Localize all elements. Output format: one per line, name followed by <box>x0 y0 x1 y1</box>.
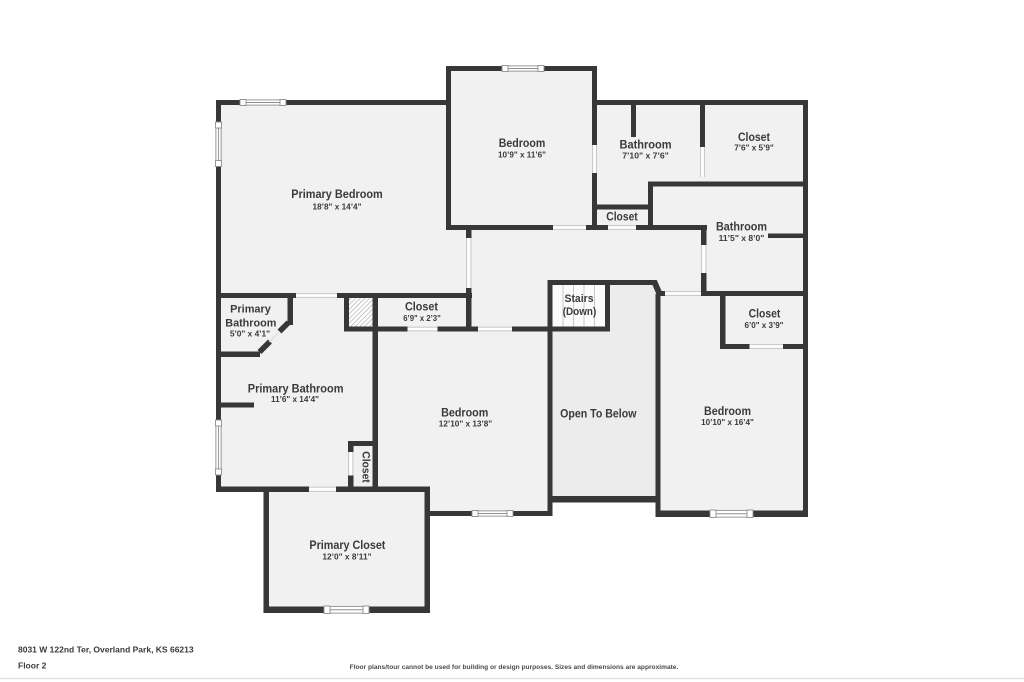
svg-text:6’0" x 3’9": 6’0" x 3’9" <box>745 320 784 330</box>
svg-text:Primary: Primary <box>230 304 272 316</box>
svg-text:Bedroom: Bedroom <box>704 404 751 418</box>
svg-text:10’10" x 16’4": 10’10" x 16’4" <box>701 417 754 427</box>
svg-text:7’6" x 5’9": 7’6" x 5’9" <box>734 143 774 153</box>
svg-text:Primary Bedroom: Primary Bedroom <box>291 187 383 201</box>
svg-text:12’10" x 13’8": 12’10" x 13’8" <box>439 419 492 429</box>
svg-text:Bedroom: Bedroom <box>441 405 488 419</box>
svg-text:8031 W 122nd Ter, Overland Par: 8031 W 122nd Ter, Overland Park, KS 6621… <box>18 645 194 655</box>
svg-text:Open To Below: Open To Below <box>560 407 637 421</box>
svg-text:Stairs: Stairs <box>565 293 594 305</box>
svg-text:5’0" x 4’1": 5’0" x 4’1" <box>230 329 270 339</box>
svg-text:Closet: Closet <box>749 306 781 320</box>
svg-text:12’0" x 8’11": 12’0" x 8’11" <box>322 552 371 562</box>
svg-text:Closet: Closet <box>405 300 438 314</box>
svg-text:Bathroom: Bathroom <box>620 137 672 151</box>
svg-text:Primary Closet: Primary Closet <box>309 538 385 552</box>
svg-text:Floor 2: Floor 2 <box>18 661 47 671</box>
svg-text:Bedroom: Bedroom <box>499 136 546 150</box>
svg-text:Closet: Closet <box>359 451 371 483</box>
svg-text:6’9" x 2’3": 6’9" x 2’3" <box>403 313 441 323</box>
svg-text:7’10" x 7’6": 7’10" x 7’6" <box>622 151 669 161</box>
svg-text:11’6" x 14’4": 11’6" x 14’4" <box>271 394 319 404</box>
svg-text:Closet: Closet <box>606 210 638 224</box>
svg-text:(Down): (Down) <box>563 306 597 318</box>
svg-text:11’5" x 8’0": 11’5" x 8’0" <box>719 233 765 243</box>
svg-text:18’8" x 14’4": 18’8" x 14’4" <box>313 202 362 212</box>
svg-text:10’9" x 11’6": 10’9" x 11’6" <box>498 150 546 160</box>
svg-text:Floor plans/tour cannot be use: Floor plans/tour cannot be used for buil… <box>350 664 679 671</box>
svg-text:Bathroom: Bathroom <box>716 220 767 234</box>
